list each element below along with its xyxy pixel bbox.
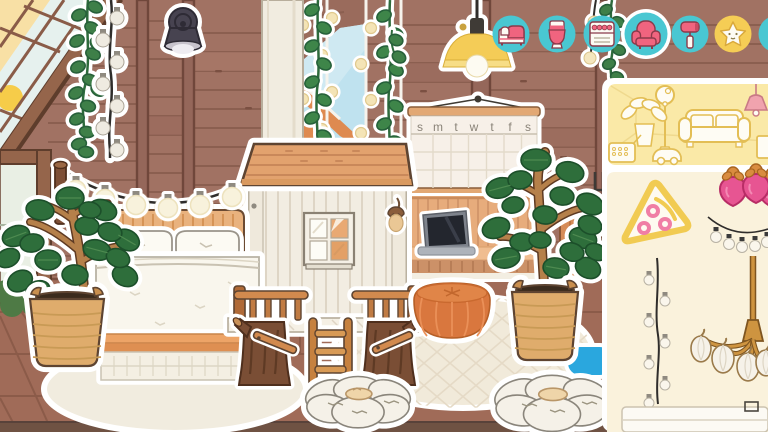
svg-text:m: m	[433, 120, 443, 134]
svg-text:w: w	[469, 120, 479, 134]
svg-text:s: s	[417, 120, 423, 134]
svg-text:s: s	[525, 120, 531, 134]
